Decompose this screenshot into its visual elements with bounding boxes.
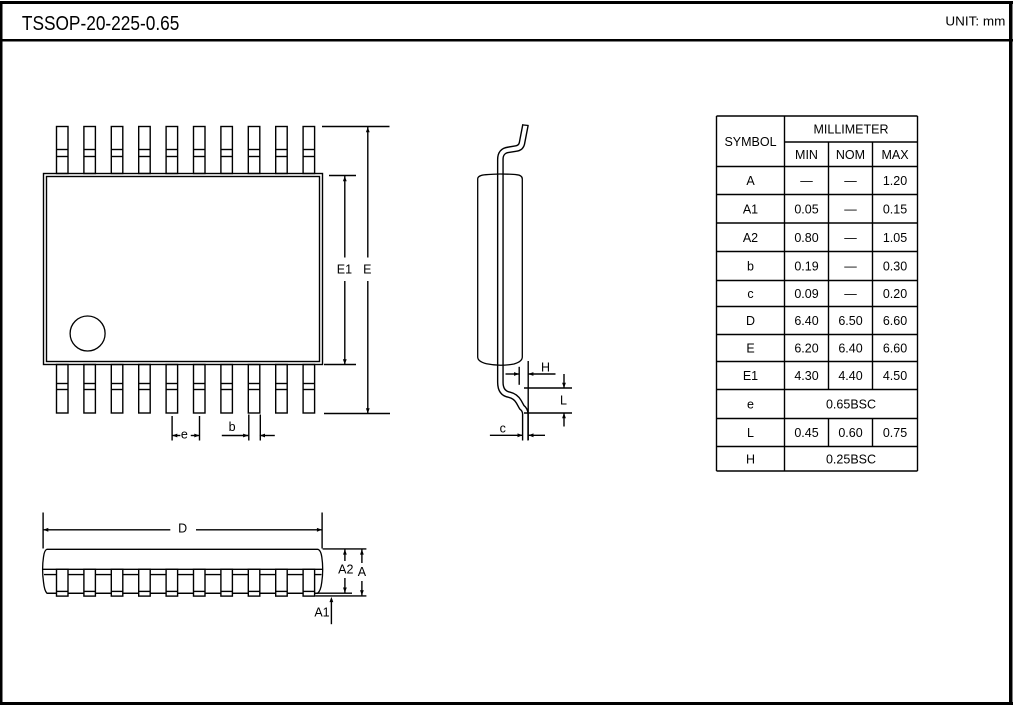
svg-text:NOM: NOM	[836, 148, 865, 162]
svg-text:0.30: 0.30	[883, 260, 907, 274]
svg-text:0.65BSC: 0.65BSC	[826, 398, 876, 412]
svg-text:—: —	[800, 174, 813, 188]
svg-text:L: L	[747, 426, 754, 440]
svg-text:6.60: 6.60	[883, 314, 907, 328]
svg-text:0.19: 0.19	[794, 260, 818, 274]
svg-text:b: b	[229, 420, 236, 434]
svg-text:A1: A1	[314, 606, 329, 620]
svg-text:H: H	[746, 452, 755, 466]
svg-text:0.20: 0.20	[883, 287, 907, 301]
svg-text:0.25BSC: 0.25BSC	[826, 452, 876, 466]
svg-text:A: A	[358, 565, 367, 579]
svg-text:0.15: 0.15	[883, 202, 907, 216]
svg-text:6.40: 6.40	[838, 342, 862, 356]
svg-text:0.80: 0.80	[794, 231, 818, 245]
svg-text:—: —	[844, 287, 857, 301]
svg-text:c: c	[747, 287, 753, 301]
svg-text:A1: A1	[743, 202, 758, 216]
svg-text:A2: A2	[743, 231, 758, 245]
svg-text:D: D	[746, 314, 755, 328]
svg-text:E: E	[363, 263, 371, 277]
svg-text:e: e	[181, 428, 188, 442]
svg-text:6.20: 6.20	[794, 342, 818, 356]
svg-text:MILLIMETER: MILLIMETER	[813, 123, 888, 137]
svg-text:0.45: 0.45	[794, 426, 818, 440]
svg-text:1.05: 1.05	[883, 231, 907, 245]
svg-text:0.60: 0.60	[838, 426, 862, 440]
svg-text:A: A	[746, 174, 755, 188]
svg-text:—: —	[844, 174, 857, 188]
svg-text:4.50: 4.50	[883, 369, 907, 383]
svg-text:A2: A2	[338, 563, 353, 577]
svg-text:L: L	[560, 394, 567, 408]
svg-text:UNIT: mm: UNIT: mm	[945, 13, 1005, 28]
svg-text:4.30: 4.30	[794, 369, 818, 383]
svg-text:D: D	[178, 522, 187, 536]
svg-text:E1: E1	[743, 369, 758, 383]
svg-text:1.20: 1.20	[883, 174, 907, 188]
svg-text:0.05: 0.05	[794, 202, 818, 216]
svg-text:6.60: 6.60	[883, 342, 907, 356]
svg-text:4.40: 4.40	[838, 369, 862, 383]
svg-text:SYMBOL: SYMBOL	[724, 135, 776, 149]
svg-text:MIN: MIN	[795, 148, 818, 162]
svg-text:0.09: 0.09	[794, 287, 818, 301]
svg-text:H: H	[541, 361, 550, 375]
svg-text:E: E	[746, 342, 754, 356]
svg-text:6.40: 6.40	[794, 314, 818, 328]
svg-text:0.75: 0.75	[883, 426, 907, 440]
svg-text:—: —	[844, 260, 857, 274]
svg-text:6.50: 6.50	[838, 314, 862, 328]
svg-text:MAX: MAX	[881, 148, 909, 162]
svg-text:b: b	[747, 260, 754, 274]
svg-text:—: —	[844, 202, 857, 216]
svg-text:e: e	[747, 398, 754, 412]
svg-text:—: —	[844, 231, 857, 245]
svg-text:c: c	[500, 422, 506, 436]
svg-text:TSSOP-20-225-0.65: TSSOP-20-225-0.65	[22, 13, 180, 35]
svg-text:E1: E1	[337, 263, 352, 277]
